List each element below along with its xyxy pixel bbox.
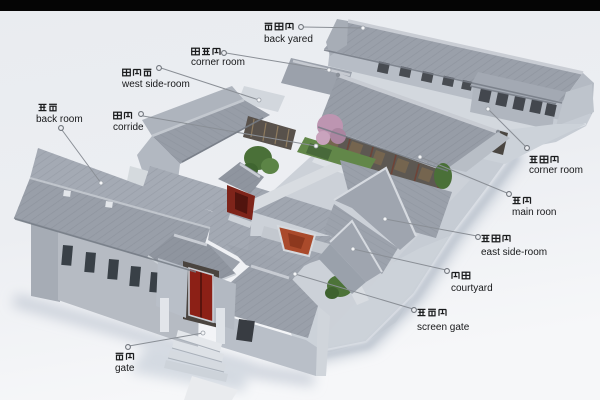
svg-text:west side-room: west side-room <box>121 79 190 90</box>
svg-text:courtyard: courtyard <box>451 283 493 294</box>
svg-text:corner room: corner room <box>191 57 245 68</box>
svg-text:corner room: corner room <box>529 165 583 176</box>
svg-text:east side-room: east side-room <box>481 247 547 258</box>
svg-text:corride: corride <box>113 122 144 133</box>
svg-text:screen gate: screen gate <box>417 322 470 333</box>
svg-text:back yared: back yared <box>264 34 313 45</box>
svg-text:back room: back room <box>36 114 83 125</box>
svg-text:main roon: main roon <box>512 207 556 218</box>
svg-text:gate: gate <box>115 363 135 374</box>
